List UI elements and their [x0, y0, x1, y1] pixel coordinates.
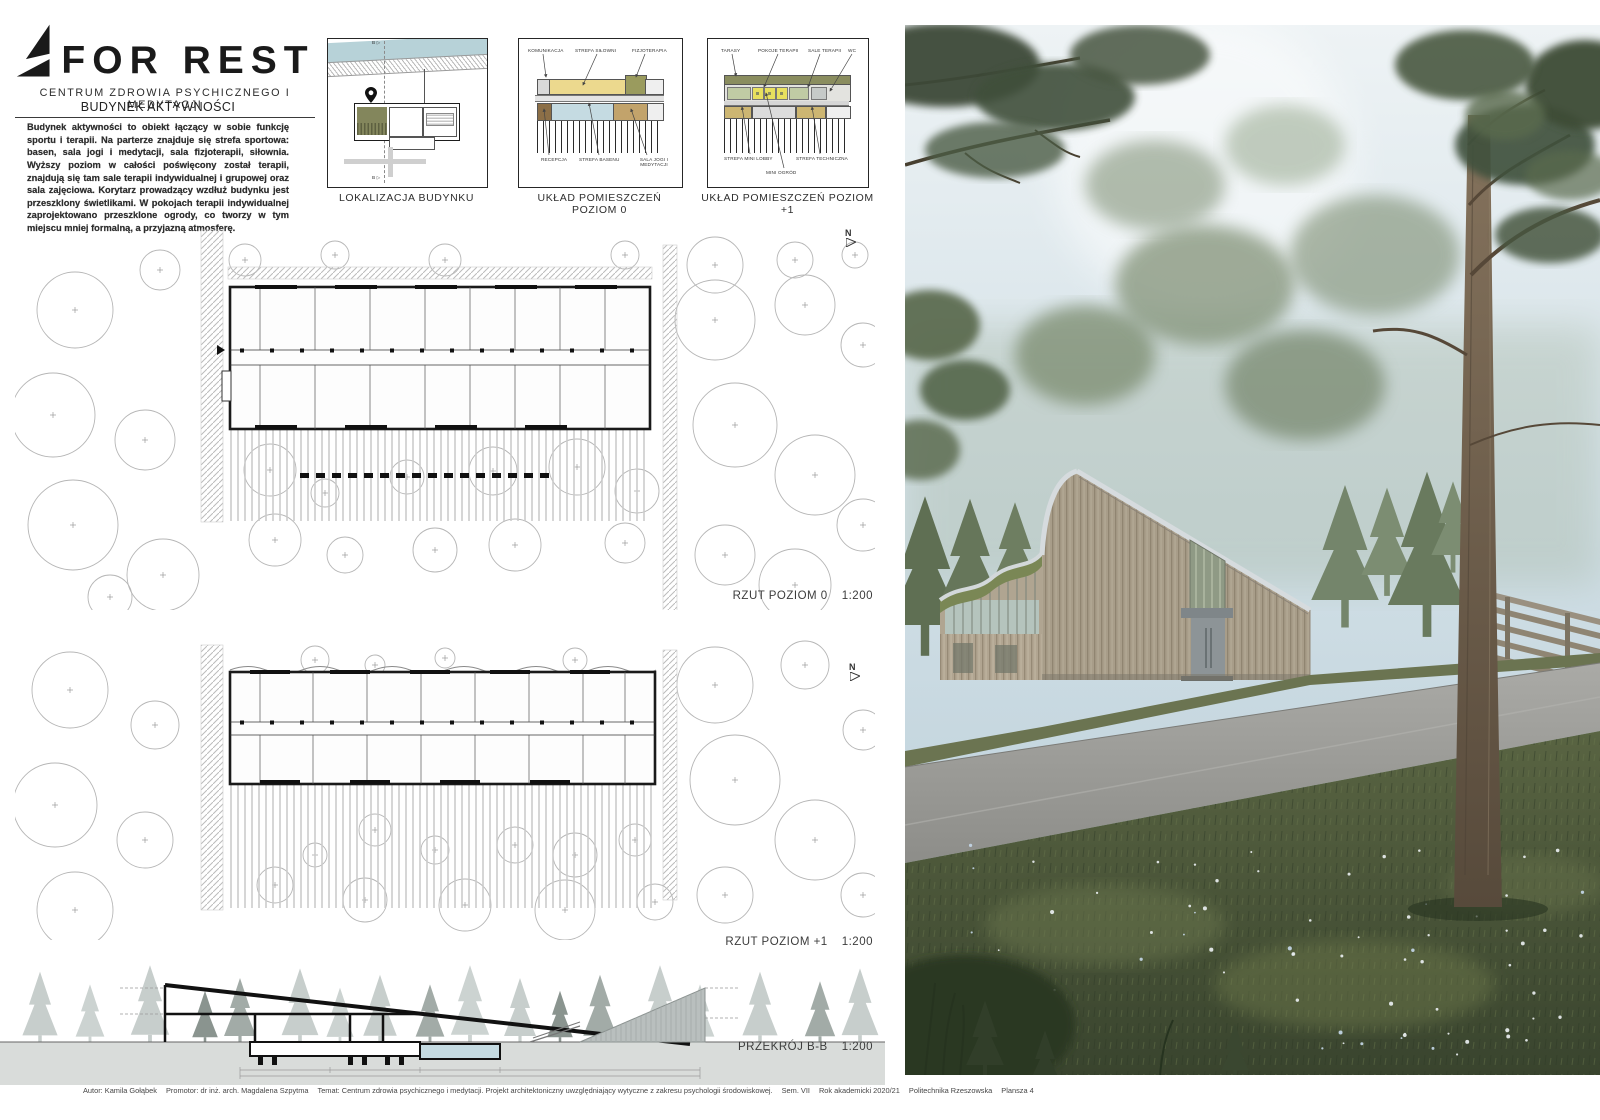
footer-author: Autor: Kamila Gołąbek	[83, 1086, 157, 1095]
footer-sem: Sem. VII	[782, 1086, 810, 1095]
footer-uczelnia: Politechnika Rzeszowska	[909, 1086, 992, 1095]
entrance-door	[1191, 618, 1225, 680]
north-arrow-plan0: N	[845, 228, 856, 247]
render-scene	[905, 25, 1600, 1075]
road-vertical	[388, 147, 393, 177]
door-lintel	[1181, 608, 1233, 618]
plan1-label: RZUT POZIOM +11:200	[575, 936, 873, 948]
leader-arrows	[708, 39, 868, 187]
diagram-location-caption: LOKALIZACJA BUDYNKU	[327, 192, 486, 204]
site-plan-level0	[15, 225, 875, 610]
footer-rok: Rok akademicki 2020/21	[819, 1086, 900, 1095]
intro-block: BUDYNEK AKTYWNOŚCI Budynek aktywności to…	[27, 100, 289, 235]
footer-plansza: Plansza 4	[1001, 1086, 1033, 1095]
access-road-line	[424, 69, 425, 105]
plan-level1	[15, 640, 875, 940]
section-label: PRZEKRÓJ B-B1:200	[575, 1041, 873, 1053]
diagram-level1: TARASY POKOJE TERAPII SALE TERAPII WC ST…	[707, 38, 869, 188]
plan0-label: RZUT POZIOM 01:200	[575, 590, 873, 602]
north-arrow-plan1: N	[849, 662, 860, 681]
section-marker-top: B ▷	[372, 40, 380, 45]
highlighted-plot	[357, 107, 387, 135]
section-drawing	[0, 948, 885, 1085]
diagram-location: B ▷ B ▷	[327, 38, 488, 188]
logo-mark-icon	[15, 22, 55, 80]
presentation-board: FOR REST CENTRUM ZDROWIA PSYCHICZNEGO I …	[0, 0, 1600, 1120]
section-marker-bottom: B ▷	[372, 175, 380, 180]
diagram-level0: KOMUNIKACJA STREFA SIŁOWNI FIZJOTERAPIA …	[518, 38, 683, 188]
road-horizontal	[344, 159, 426, 164]
footer-temat: Temat: Centrum zdrowia psychicznego i me…	[318, 1086, 773, 1095]
diagram-level0-caption: UKŁAD POMIESZCZEŃ POZIOM 0	[518, 192, 681, 216]
north-flag-icon	[850, 672, 860, 681]
board-footer: Autor: Kamila Gołąbek Promotor: dr inż. …	[83, 1086, 875, 1095]
intro-body: Budynek aktywności to obiekt łączący w s…	[27, 121, 289, 235]
site-building-footprint	[354, 103, 460, 141]
north-flag-icon	[846, 238, 856, 247]
render-visualisation	[905, 25, 1600, 1075]
logo-title: FOR REST	[61, 41, 314, 80]
diagram-level1-caption: UKŁAD POMIESZCZEŃ POZIOM +1	[700, 192, 875, 216]
footer-promotor: Promotor: dr inż. arch. Magdalena Szpytm…	[166, 1086, 309, 1095]
intro-title: BUDYNEK AKTYWNOŚCI	[27, 100, 289, 114]
location-pin-icon	[365, 87, 377, 103]
leader-arrows	[519, 39, 682, 187]
